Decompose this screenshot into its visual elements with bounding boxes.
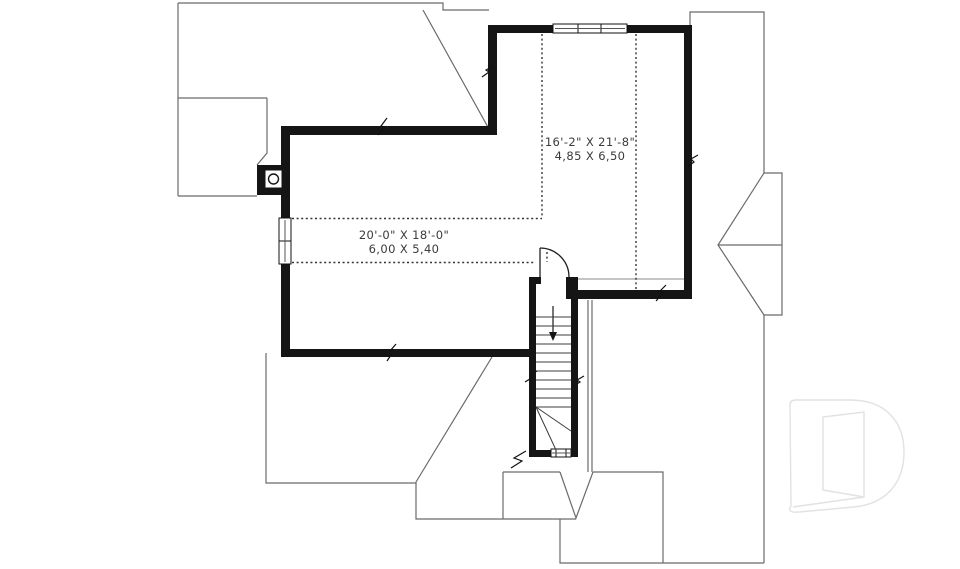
- wall-leftroom-top: [281, 126, 497, 135]
- room-labels: 16'-2" X 21'-8" 4,85 X 6,50 20'-0" X 18'…: [359, 135, 635, 256]
- wall-rightroom-bottom: [571, 290, 692, 299]
- window-left-double-icon: [279, 218, 291, 264]
- staircase: [536, 306, 571, 450]
- window-stair-icon: [551, 449, 571, 457]
- room-upper-right-metric: 4,85 X 6,50: [555, 149, 626, 163]
- room-left-metric: 6,00 X 5,40: [369, 242, 440, 256]
- room-upper-right-imperial: 16'-2" X 21'-8": [545, 135, 635, 149]
- roof-outline-upper-left: [178, 3, 489, 196]
- wall-stair-right: [571, 277, 578, 457]
- wall-stair-left: [529, 277, 536, 457]
- room-left-imperial: 20'-0" X 18'-0": [359, 228, 449, 242]
- wall-leftroom-bottom: [281, 349, 536, 357]
- door-swing-icon: [540, 248, 569, 277]
- window-top-triple-icon: [553, 24, 627, 33]
- exterior-walls: [281, 25, 692, 457]
- floor-plan-canvas: 16'-2" X 21'-8" 4,85 X 6,50 20'-0" X 18'…: [0, 0, 960, 569]
- wall-connector: [488, 25, 497, 135]
- chimney-icon: [257, 165, 288, 195]
- wall-door-stub-right: [566, 277, 578, 299]
- roof-outline-lower: [266, 300, 764, 563]
- roof-outline-right-bay: [690, 12, 782, 563]
- wall-door-stub-left: [529, 277, 541, 284]
- stair-winders: [536, 407, 571, 450]
- stair-down-arrow-icon: [549, 306, 557, 341]
- floor-plan-drawing: 16'-2" X 21'-8" 4,85 X 6,50 20'-0" X 18'…: [0, 0, 960, 569]
- drummond-d-logo-icon: [790, 400, 904, 512]
- wall-right: [684, 25, 692, 299]
